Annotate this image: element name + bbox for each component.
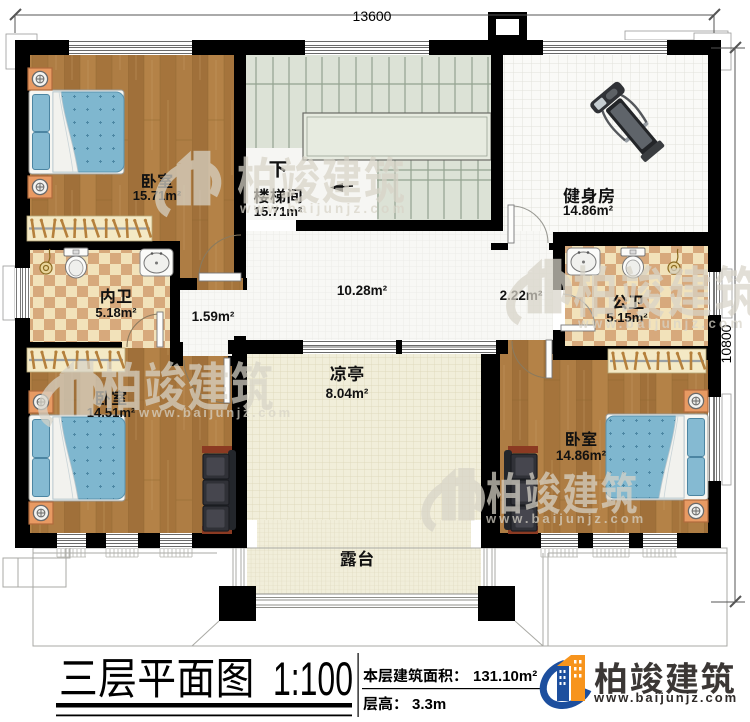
svg-text:14.86m²: 14.86m² [556,448,607,463]
svg-text:131.10m²: 131.10m² [473,668,537,685]
svg-text:1:100: 1:100 [273,652,353,705]
svg-text:5.18m²: 5.18m² [95,305,137,320]
svg-text:3.3m: 3.3m [412,696,446,713]
svg-text:10.28m²: 10.28m² [337,283,388,298]
svg-text:1.59m²: 1.59m² [192,309,235,324]
svg-text:www.baijunjz.com: www.baijunjz.com [138,405,293,420]
svg-text:14.86m²: 14.86m² [563,203,614,218]
svg-text:www.baijunjz.com: www.baijunjz.com [485,511,646,526]
svg-text:13600: 13600 [353,8,392,24]
svg-text:8.04m²: 8.04m² [326,386,369,401]
svg-text:www.baijunjz.com: www.baijunjz.com [239,201,408,216]
svg-text:www.baijunjz.com: www.baijunjz.com [593,690,738,705]
svg-text:www.baijunjz.com: www.baijunjz.com [577,316,746,331]
